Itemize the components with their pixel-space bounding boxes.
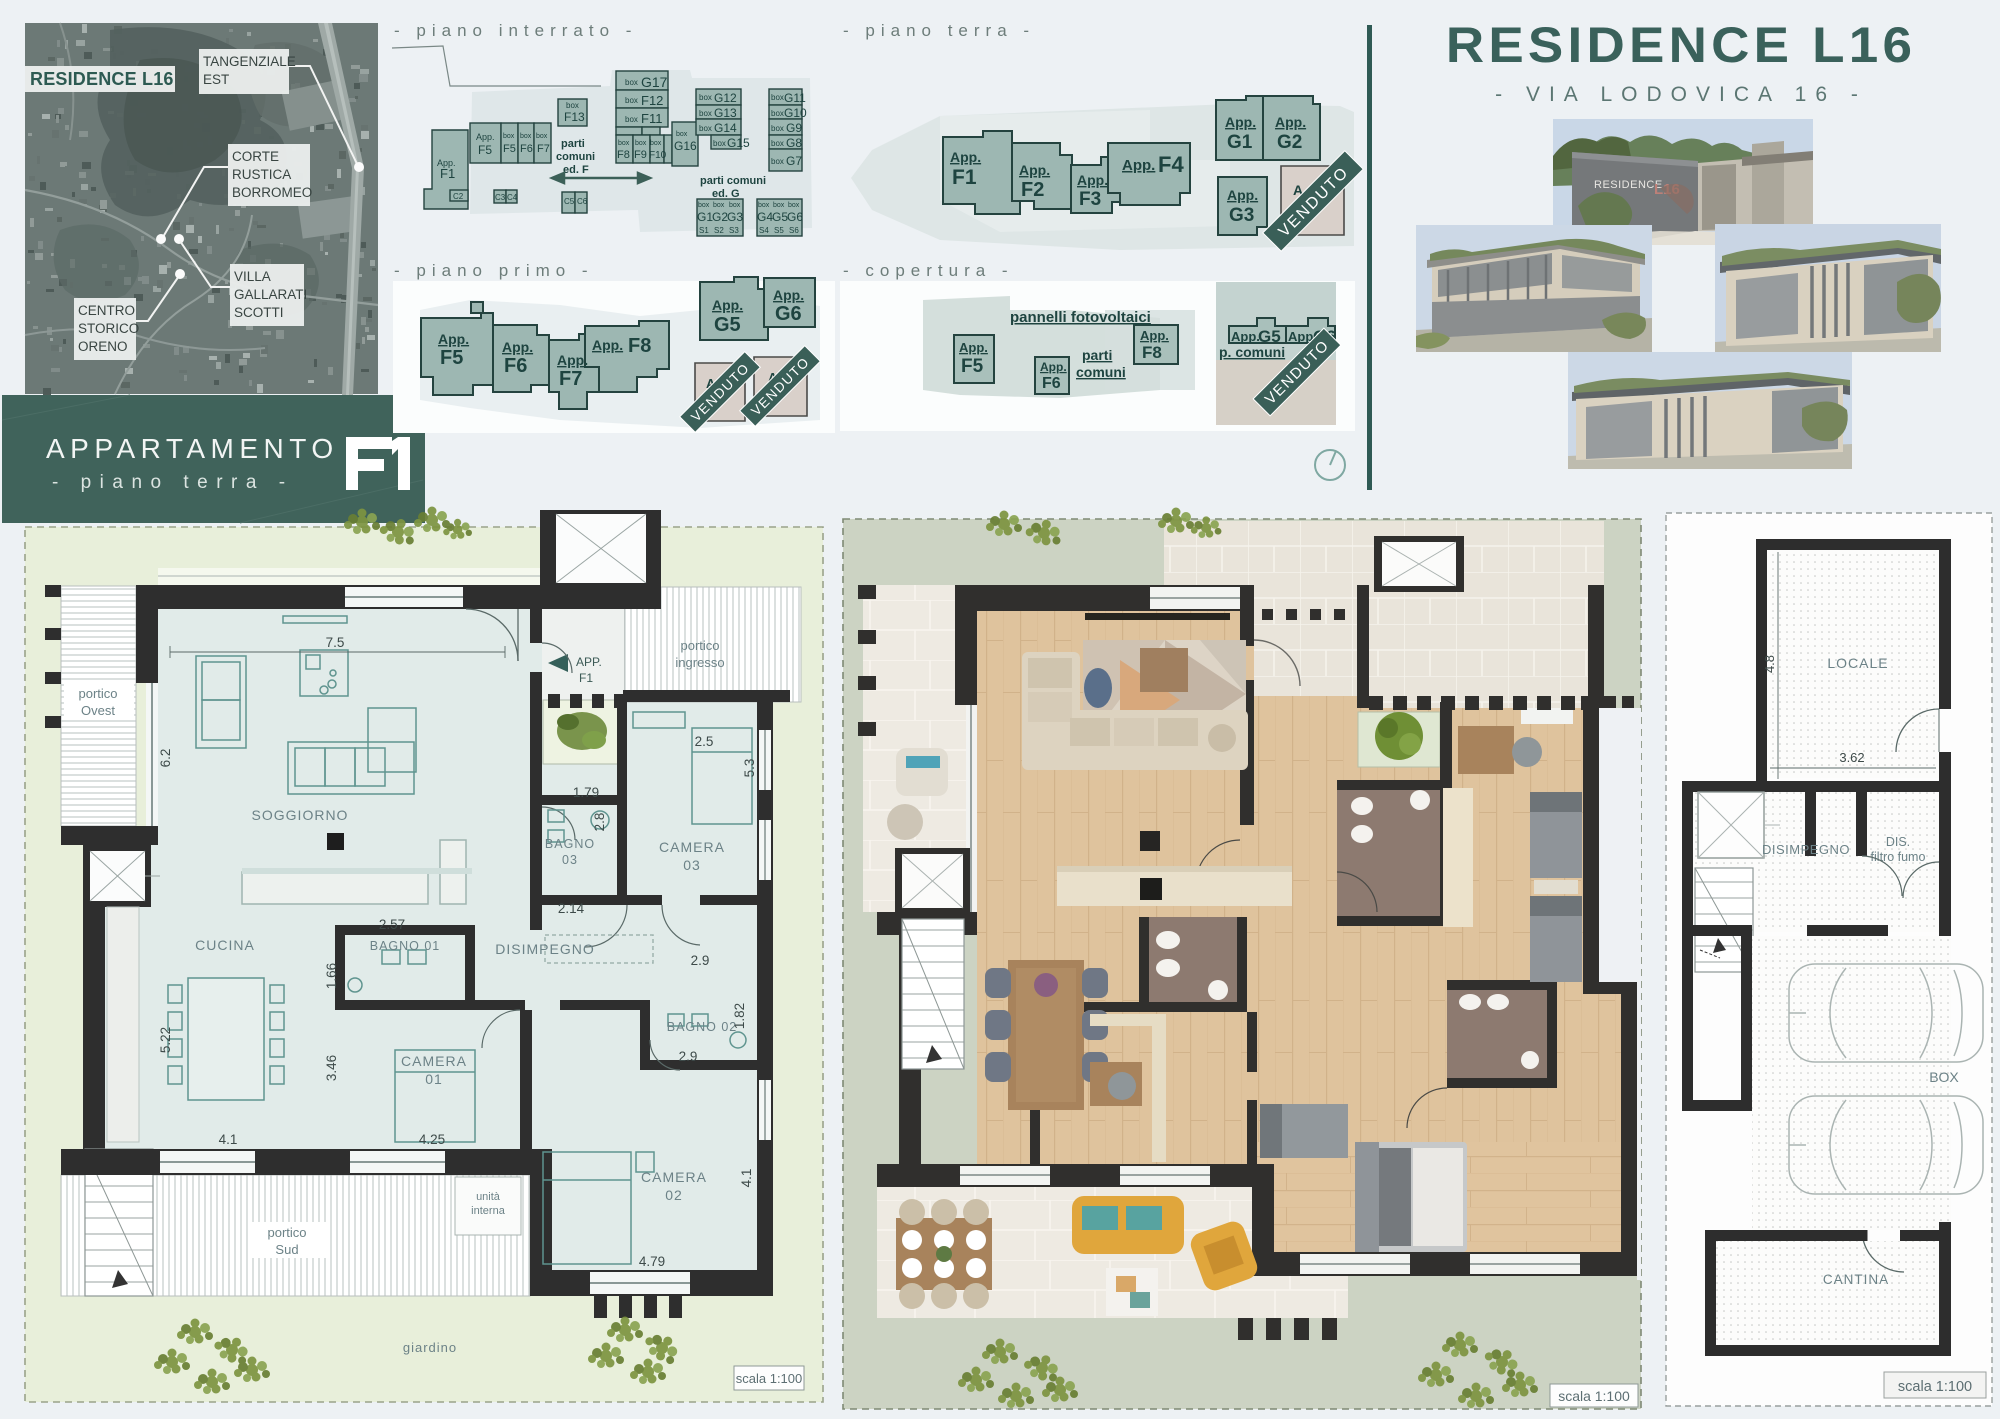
svg-text:1.79: 1.79	[573, 785, 599, 800]
svg-text:CAMERA: CAMERA	[401, 1053, 467, 1069]
svg-text:02: 02	[665, 1187, 683, 1203]
svg-text:- piano interrato -: - piano interrato -	[394, 21, 637, 40]
svg-text:App.: App.	[592, 337, 623, 353]
svg-text:box: box	[773, 202, 785, 209]
svg-text:4.79: 4.79	[639, 1254, 665, 1269]
svg-text:G12: G12	[714, 91, 737, 105]
svg-text:portico: portico	[680, 638, 719, 653]
svg-text:F1: F1	[579, 671, 593, 685]
svg-text:7.5: 7.5	[326, 635, 345, 650]
svg-text:G7: G7	[786, 154, 802, 168]
svg-text:BAGNO 02: BAGNO 02	[667, 1020, 738, 1034]
svg-text:F5: F5	[961, 356, 984, 377]
svg-text:3.62: 3.62	[1839, 750, 1864, 765]
svg-text:G15: G15	[727, 136, 750, 150]
svg-text:App.: App.	[1040, 360, 1067, 374]
svg-text:box: box	[520, 133, 532, 140]
svg-text:box: box	[713, 202, 725, 209]
svg-text:box: box	[771, 93, 784, 102]
svg-text:ingresso: ingresso	[675, 655, 724, 670]
svg-text:C4: C4	[507, 193, 518, 202]
svg-text:F5: F5	[440, 347, 463, 369]
svg-text:G11: G11	[784, 91, 806, 105]
svg-text:App.: App.	[1122, 157, 1155, 174]
svg-text:S3: S3	[729, 226, 739, 235]
svg-text:App.: App.	[959, 340, 988, 355]
svg-text:giardino: giardino	[403, 1340, 457, 1355]
svg-text:F2: F2	[1021, 179, 1044, 201]
svg-text:2.57: 2.57	[379, 917, 405, 932]
svg-text:G3: G3	[1229, 205, 1254, 226]
svg-text:STORICO: STORICO	[78, 321, 139, 336]
svg-text:EST: EST	[203, 72, 229, 87]
svg-text:APP.: APP.	[576, 655, 602, 669]
svg-text:G8: G8	[786, 136, 802, 150]
svg-text:box: box	[635, 140, 647, 147]
svg-text:box: box	[758, 202, 770, 209]
svg-text:scala 1:100: scala 1:100	[1898, 1379, 1972, 1395]
svg-text:Sud: Sud	[275, 1242, 298, 1257]
svg-text:comuni: comuni	[1076, 364, 1126, 380]
svg-text:RESIDENCE: RESIDENCE	[1594, 179, 1663, 191]
svg-text:2.14: 2.14	[558, 901, 585, 916]
svg-text:App.: App.	[476, 132, 495, 142]
svg-text:C2: C2	[453, 192, 464, 201]
svg-text:F4: F4	[1158, 152, 1184, 177]
svg-text:G14: G14	[714, 121, 737, 135]
svg-text:5.22: 5.22	[158, 1027, 173, 1053]
svg-text:box: box	[771, 109, 784, 118]
svg-text:03: 03	[683, 857, 701, 873]
svg-text:scala 1:100: scala 1:100	[1558, 1388, 1630, 1404]
svg-text:F6: F6	[520, 143, 533, 155]
svg-text:G1: G1	[1227, 132, 1253, 153]
svg-text:BAGNO: BAGNO	[545, 837, 595, 851]
svg-text:box: box	[699, 124, 712, 133]
svg-text:G5: G5	[772, 210, 788, 224]
svg-text:G16: G16	[674, 139, 697, 153]
svg-text:BAGNO 01: BAGNO 01	[370, 939, 441, 953]
svg-text:interna: interna	[471, 1205, 506, 1217]
svg-text:p. comuni: p. comuni	[1219, 344, 1285, 360]
svg-text:App.: App.	[1227, 187, 1258, 203]
svg-text:pannelli fotovoltaici: pannelli fotovoltaici	[1010, 309, 1151, 326]
svg-text:- piano terra -: - piano terra -	[843, 21, 1035, 40]
svg-text:C3: C3	[495, 193, 506, 202]
svg-text:CANTINA: CANTINA	[1823, 1272, 1889, 1287]
svg-text:2.5: 2.5	[695, 734, 714, 749]
svg-text:ORENO: ORENO	[78, 339, 128, 354]
svg-text:6.2: 6.2	[158, 749, 173, 768]
svg-text:S5: S5	[774, 226, 784, 235]
svg-text:G6: G6	[787, 210, 803, 224]
svg-text:box: box	[625, 96, 638, 105]
svg-text:F11: F11	[641, 111, 662, 126]
svg-text:F5: F5	[478, 143, 492, 157]
svg-text:box: box	[771, 139, 784, 148]
svg-text:ed. G: ed. G	[712, 188, 740, 200]
svg-text:portico: portico	[267, 1225, 306, 1240]
svg-text:box: box	[566, 101, 579, 110]
svg-text:G9: G9	[786, 121, 802, 135]
svg-text:1.66: 1.66	[324, 963, 339, 989]
svg-text:box: box	[676, 131, 688, 138]
svg-text:G6: G6	[775, 303, 802, 325]
svg-text:App.: App.	[1231, 329, 1260, 344]
svg-text:CENTRO: CENTRO	[78, 303, 135, 318]
svg-text:C5: C5	[564, 197, 575, 206]
svg-text:G2: G2	[712, 210, 728, 224]
svg-text:1.82: 1.82	[732, 1003, 747, 1029]
svg-text:scala 1:100: scala 1:100	[736, 1371, 803, 1386]
svg-text:2.9: 2.9	[679, 1049, 698, 1064]
svg-text:box: box	[650, 140, 662, 147]
svg-text:CAMERA: CAMERA	[641, 1169, 707, 1185]
svg-text:F12: F12	[641, 93, 663, 108]
svg-text:G10: G10	[784, 106, 807, 120]
svg-text:APPARTAMENTO: APPARTAMENTO	[46, 433, 339, 464]
svg-text:DISIMPEGNO: DISIMPEGNO	[495, 941, 594, 957]
svg-text:parti: parti	[561, 138, 585, 150]
svg-text:F6: F6	[504, 355, 527, 377]
svg-text:parti comuni: parti comuni	[700, 175, 766, 187]
svg-text:F13: F13	[564, 110, 585, 124]
svg-text:G1: G1	[697, 210, 713, 224]
svg-text:BOX: BOX	[1929, 1069, 1959, 1085]
svg-text:F10: F10	[649, 150, 667, 161]
svg-text:box: box	[788, 202, 800, 209]
svg-text:4.1: 4.1	[739, 1169, 754, 1188]
svg-text:G17: G17	[641, 74, 668, 90]
svg-text:F3: F3	[1079, 189, 1101, 210]
svg-text:SOGGIORNO: SOGGIORNO	[252, 807, 349, 823]
svg-text:App.: App.	[950, 149, 981, 165]
svg-text:2.9: 2.9	[691, 953, 710, 968]
svg-text:F1: F1	[952, 166, 977, 189]
svg-text:- piano primo -: - piano primo -	[394, 261, 594, 280]
svg-text:App.: App.	[712, 297, 743, 313]
svg-text:F8: F8	[628, 335, 651, 357]
svg-text:F5: F5	[503, 143, 516, 155]
svg-text:S1: S1	[699, 226, 709, 235]
svg-text:App.: App.	[1140, 328, 1169, 343]
svg-text:GALLARATI: GALLARATI	[234, 287, 307, 302]
svg-text:App.: App.	[1019, 162, 1050, 178]
svg-text:box: box	[771, 157, 784, 166]
svg-text:SCOTTI: SCOTTI	[234, 305, 284, 320]
svg-text:RESIDENCE L16: RESIDENCE L16	[1446, 16, 1916, 72]
svg-text:G5: G5	[714, 314, 741, 336]
svg-text:C6: C6	[577, 197, 588, 206]
svg-text:S6: S6	[789, 226, 799, 235]
svg-text:LOCALE: LOCALE	[1827, 655, 1888, 671]
svg-text:box: box	[698, 202, 710, 209]
svg-text:G3: G3	[727, 210, 743, 224]
svg-text:01: 01	[425, 1071, 443, 1087]
svg-text:box: box	[729, 202, 741, 209]
svg-text:parti: parti	[1082, 347, 1112, 363]
svg-text:G4: G4	[757, 210, 773, 224]
svg-text:CUCINA: CUCINA	[195, 937, 255, 953]
svg-text:2.8: 2.8	[592, 813, 607, 832]
svg-text:- piano terra -: - piano terra -	[52, 472, 294, 493]
svg-text:box: box	[771, 124, 784, 133]
svg-text:box: box	[618, 140, 630, 147]
svg-text:TANGENZIALE: TANGENZIALE	[203, 54, 296, 69]
svg-text:F6: F6	[1042, 375, 1061, 392]
svg-text:box: box	[699, 109, 712, 118]
svg-text:portico: portico	[78, 686, 117, 701]
svg-text:F7: F7	[537, 143, 550, 155]
svg-text:4.25: 4.25	[419, 1132, 445, 1147]
svg-text:- copertura -: - copertura -	[843, 261, 1014, 280]
svg-text:F7: F7	[559, 368, 582, 390]
svg-text:App.: App.	[1275, 114, 1306, 130]
svg-text:- VIA LODOVICA 16 -: - VIA LODOVICA 16 -	[1495, 83, 1867, 106]
svg-text:4.8: 4.8	[1762, 655, 1777, 673]
svg-text:5.3: 5.3	[742, 759, 757, 778]
svg-text:DISIMPEGNO: DISIMPEGNO	[1762, 842, 1850, 857]
svg-text:CAMERA: CAMERA	[659, 839, 725, 855]
svg-text:filtro fumo: filtro fumo	[1871, 850, 1926, 864]
svg-text:App.: App.	[1077, 172, 1108, 188]
svg-text:App.: App.	[1225, 114, 1256, 130]
svg-text:unità: unità	[476, 1191, 501, 1203]
svg-text:F8: F8	[1142, 343, 1162, 362]
svg-text:S2: S2	[714, 226, 724, 235]
svg-text:VILLA: VILLA	[234, 269, 271, 284]
svg-text:F1: F1	[440, 166, 455, 181]
svg-text:box: box	[713, 139, 726, 148]
svg-text:F9: F9	[634, 149, 647, 161]
svg-text:box: box	[536, 133, 548, 140]
svg-text:F8: F8	[617, 149, 630, 161]
svg-text:comuni: comuni	[556, 151, 595, 163]
svg-text:03: 03	[562, 853, 578, 867]
svg-text:S4: S4	[759, 226, 769, 235]
svg-text:G13: G13	[714, 106, 737, 120]
svg-text:4.1: 4.1	[219, 1132, 238, 1147]
svg-text:BORROMEO: BORROMEO	[232, 185, 312, 200]
svg-text:G2: G2	[1277, 132, 1302, 153]
svg-text:box: box	[625, 115, 638, 124]
svg-text:box: box	[503, 133, 515, 140]
svg-text:App.: App.	[438, 331, 469, 347]
svg-text:RESIDENCE L16: RESIDENCE L16	[30, 69, 174, 89]
svg-text:box: box	[625, 78, 638, 87]
svg-text:ed. F: ed. F	[563, 164, 589, 176]
svg-text:Ovest: Ovest	[81, 703, 115, 718]
svg-text:3.46: 3.46	[324, 1055, 339, 1081]
svg-text:App.: App.	[502, 339, 533, 355]
svg-text:DIS.: DIS.	[1886, 835, 1910, 849]
svg-text:App.: App.	[557, 352, 588, 368]
svg-text:box: box	[699, 93, 712, 102]
svg-text:App.: App.	[773, 287, 804, 303]
svg-text:CORTE: CORTE	[232, 149, 279, 164]
svg-text:RUSTICA: RUSTICA	[232, 167, 291, 182]
